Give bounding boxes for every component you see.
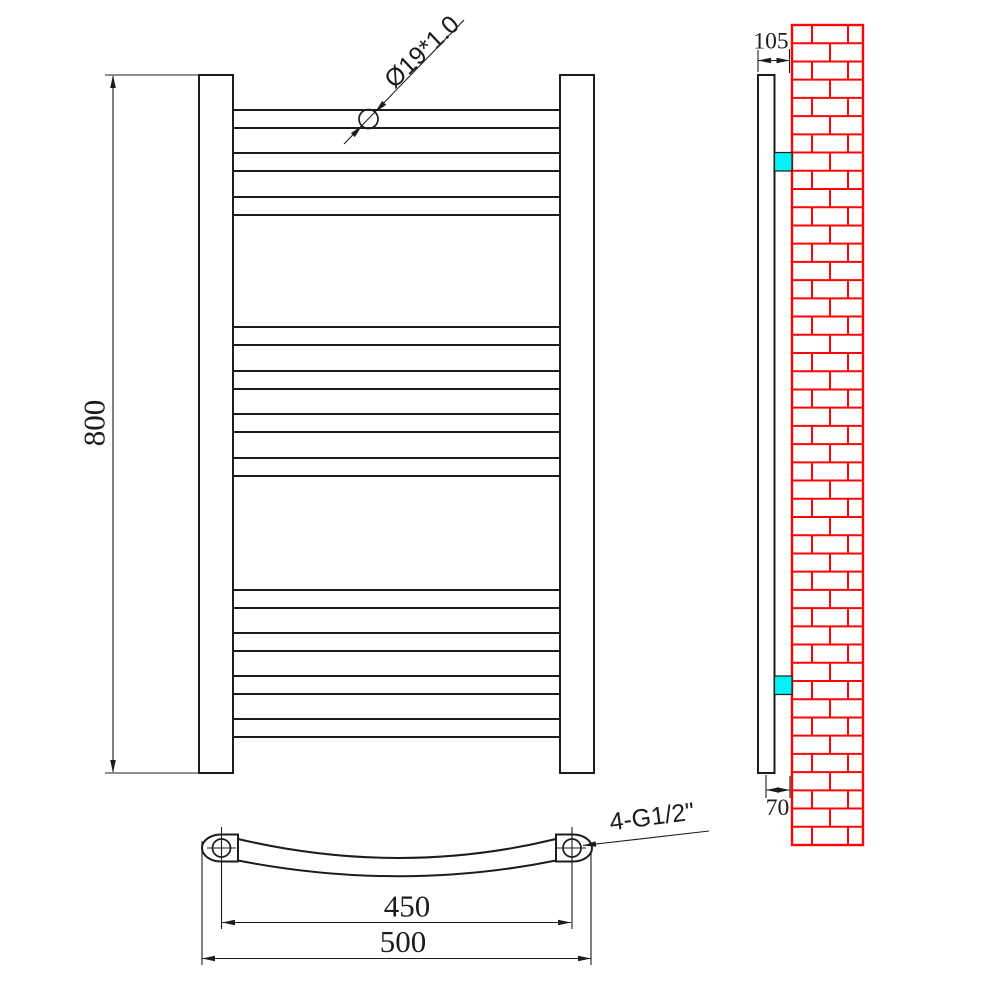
right-rail [560,75,594,773]
towel-bar [233,153,560,171]
arrowhead [777,58,790,64]
towel-bar [233,371,560,389]
height-dimension-label: 800 [77,400,112,447]
offset-dimension: 70 [766,775,790,821]
centers-dimension: 450 [222,889,571,924]
depth-dimension-label: 105 [753,29,788,55]
thread-leader-line [583,831,709,846]
towel-bar [233,590,560,608]
left-rail [199,75,233,773]
side-view: 105 70 [753,25,863,845]
front-view: 800 Ø19*1.0 [77,10,595,773]
curved-bar-top-edge [238,839,556,858]
width-dimension: 500 [202,924,591,959]
towel-bars [233,110,560,737]
side-tube [758,75,775,773]
top-view: 450 500 4-G1/2" [202,798,709,965]
towel-bar [233,458,560,476]
technical-drawing-canvas: 800 Ø19*1.0 450 500 4-G1/2" [0,0,1001,1001]
drawing-svg: 800 Ø19*1.0 450 500 4-G1/2" [0,0,1001,1001]
arrowhead [758,58,771,64]
towel-bar [233,719,560,737]
arrowhead [558,920,571,926]
arrowhead [110,75,116,88]
tube-diameter-label: Ø19*1.0 [379,10,465,93]
lower-wall-bracket [775,676,793,695]
upper-wall-bracket [775,153,793,172]
arrowhead [202,956,215,962]
offset-dimension-label: 70 [766,795,790,821]
depth-dimension: 105 [753,29,789,74]
curved-bar-bottom-edge [238,861,556,877]
width-dimension-label: 500 [380,924,427,959]
towel-bar [233,676,560,694]
towel-bar [233,110,560,128]
thread-callout: 4-G1/2" [583,798,709,846]
arrowhead [110,760,116,773]
centers-dimension-label: 450 [384,889,431,924]
thread-size-label: 4-G1/2" [608,798,696,837]
arrowhead [222,920,235,926]
arrowhead [578,956,591,962]
towel-bar [233,327,560,345]
towel-bar [233,633,560,651]
towel-bar [233,414,560,432]
arrowhead [777,787,790,793]
wall-section [792,25,863,845]
towel-bar [233,197,560,215]
